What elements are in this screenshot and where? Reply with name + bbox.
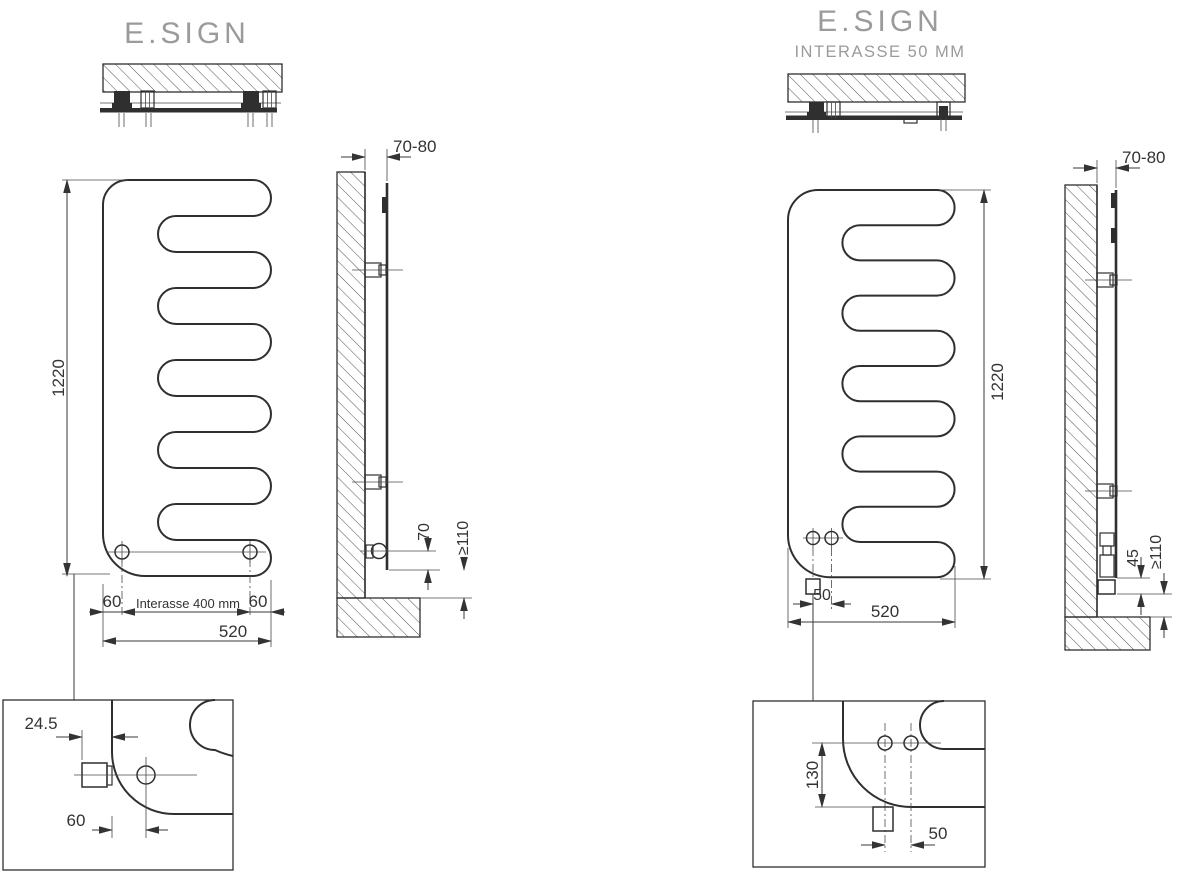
right-radiator-outline <box>788 190 955 577</box>
right-wall-section-top <box>788 74 965 102</box>
dim-detail-130: 130 <box>803 743 822 807</box>
floor-section <box>1065 617 1150 650</box>
right-floor-clearance-label: ≥110 <box>1148 535 1165 569</box>
detail-interasse-label: 50 <box>929 824 948 843</box>
right-title: E.SIGN <box>817 5 943 38</box>
right-height-label: 1220 <box>988 363 1007 401</box>
left-side-view: 70-80 70 ≥110 <box>337 137 472 637</box>
dim-interasse-50: 50 <box>793 587 851 604</box>
detail-serpentine-cap <box>190 700 233 756</box>
detail-outlet-height-label: 130 <box>803 761 822 789</box>
detail-protrusion-label: 24.5 <box>24 714 57 733</box>
technical-drawing-svg: E.SIGN 1220 <box>0 0 1179 881</box>
right-detail-view: 130 50 <box>753 701 985 867</box>
left-offset-right-label: 60 <box>249 592 268 611</box>
detail-panel-corner <box>843 701 985 807</box>
left-offset-left-label: 60 <box>103 592 122 611</box>
left-wall-section-top <box>103 64 282 92</box>
right-wall-distance-label: 70-80 <box>1122 148 1165 167</box>
left-floor-clearance-label: ≥110 <box>455 521 472 555</box>
dim-detail-60: 60 <box>67 811 168 830</box>
detail-valve-block <box>873 807 893 831</box>
dim-height-1220: 1220 <box>49 180 128 576</box>
cable-box-icon <box>382 197 388 213</box>
left-wall-distance-label: 70-80 <box>393 137 436 156</box>
cable-box-icon <box>1111 228 1117 243</box>
right-valve-drop-label: 45 <box>1125 549 1142 567</box>
right-width-label: 520 <box>871 602 899 621</box>
dim-outlet-height: 70 <box>389 523 440 590</box>
left-panel-top-edge <box>100 108 277 113</box>
cable-box-icon <box>1111 193 1117 208</box>
right-top-view <box>785 74 965 133</box>
right-interasse-label: 50 <box>813 587 831 604</box>
detail-frame <box>753 701 985 867</box>
dim-height-1220-right: 1220 <box>940 190 1007 579</box>
left-detail-view: 60 24.5 <box>3 700 233 870</box>
left-interasse-label: Interasse 400 mm <box>136 596 240 611</box>
left-width-label: 520 <box>219 622 247 641</box>
detail-outlet-offset-label: 60 <box>67 811 86 830</box>
wall-section <box>337 172 365 598</box>
right-subtitle: INTERASSE 50 MM <box>794 43 965 61</box>
dim-detail-24-5: 24.5 <box>24 714 138 760</box>
left-radiator-outline <box>103 180 271 576</box>
floor-section <box>337 598 420 637</box>
left-height-label: 1220 <box>49 359 68 397</box>
right-side-view: 70-80 45 ≥110 <box>1065 148 1172 650</box>
detail-panel-corner <box>112 700 233 814</box>
dim-detail-50: 50 <box>861 824 947 845</box>
dim-wall-distance-right: 70-80 <box>1073 148 1165 188</box>
detail-serpentine-cap <box>920 701 985 749</box>
mounting-bracket-icon <box>263 91 276 108</box>
valve-side <box>360 544 436 559</box>
right-front-view: 50 520 1220 <box>788 190 1007 701</box>
radiator-technical-drawing: E.SIGN 1220 <box>0 0 1179 881</box>
left-front-view: 1220 60 Interasse 400 mm 60 520 <box>49 180 285 700</box>
wall-section <box>1065 185 1097 617</box>
valve-assembly-side <box>1098 533 1115 594</box>
mounting-bracket-icon <box>141 91 154 108</box>
dim-bottom-left: 60 Interasse 400 mm 60 520 <box>89 580 285 647</box>
left-outlet-height-label: 70 <box>416 523 433 541</box>
left-title: E.SIGN <box>124 17 250 50</box>
dim-floor-clearance-right: ≥110 <box>1148 535 1172 638</box>
left-top-view <box>100 64 282 127</box>
